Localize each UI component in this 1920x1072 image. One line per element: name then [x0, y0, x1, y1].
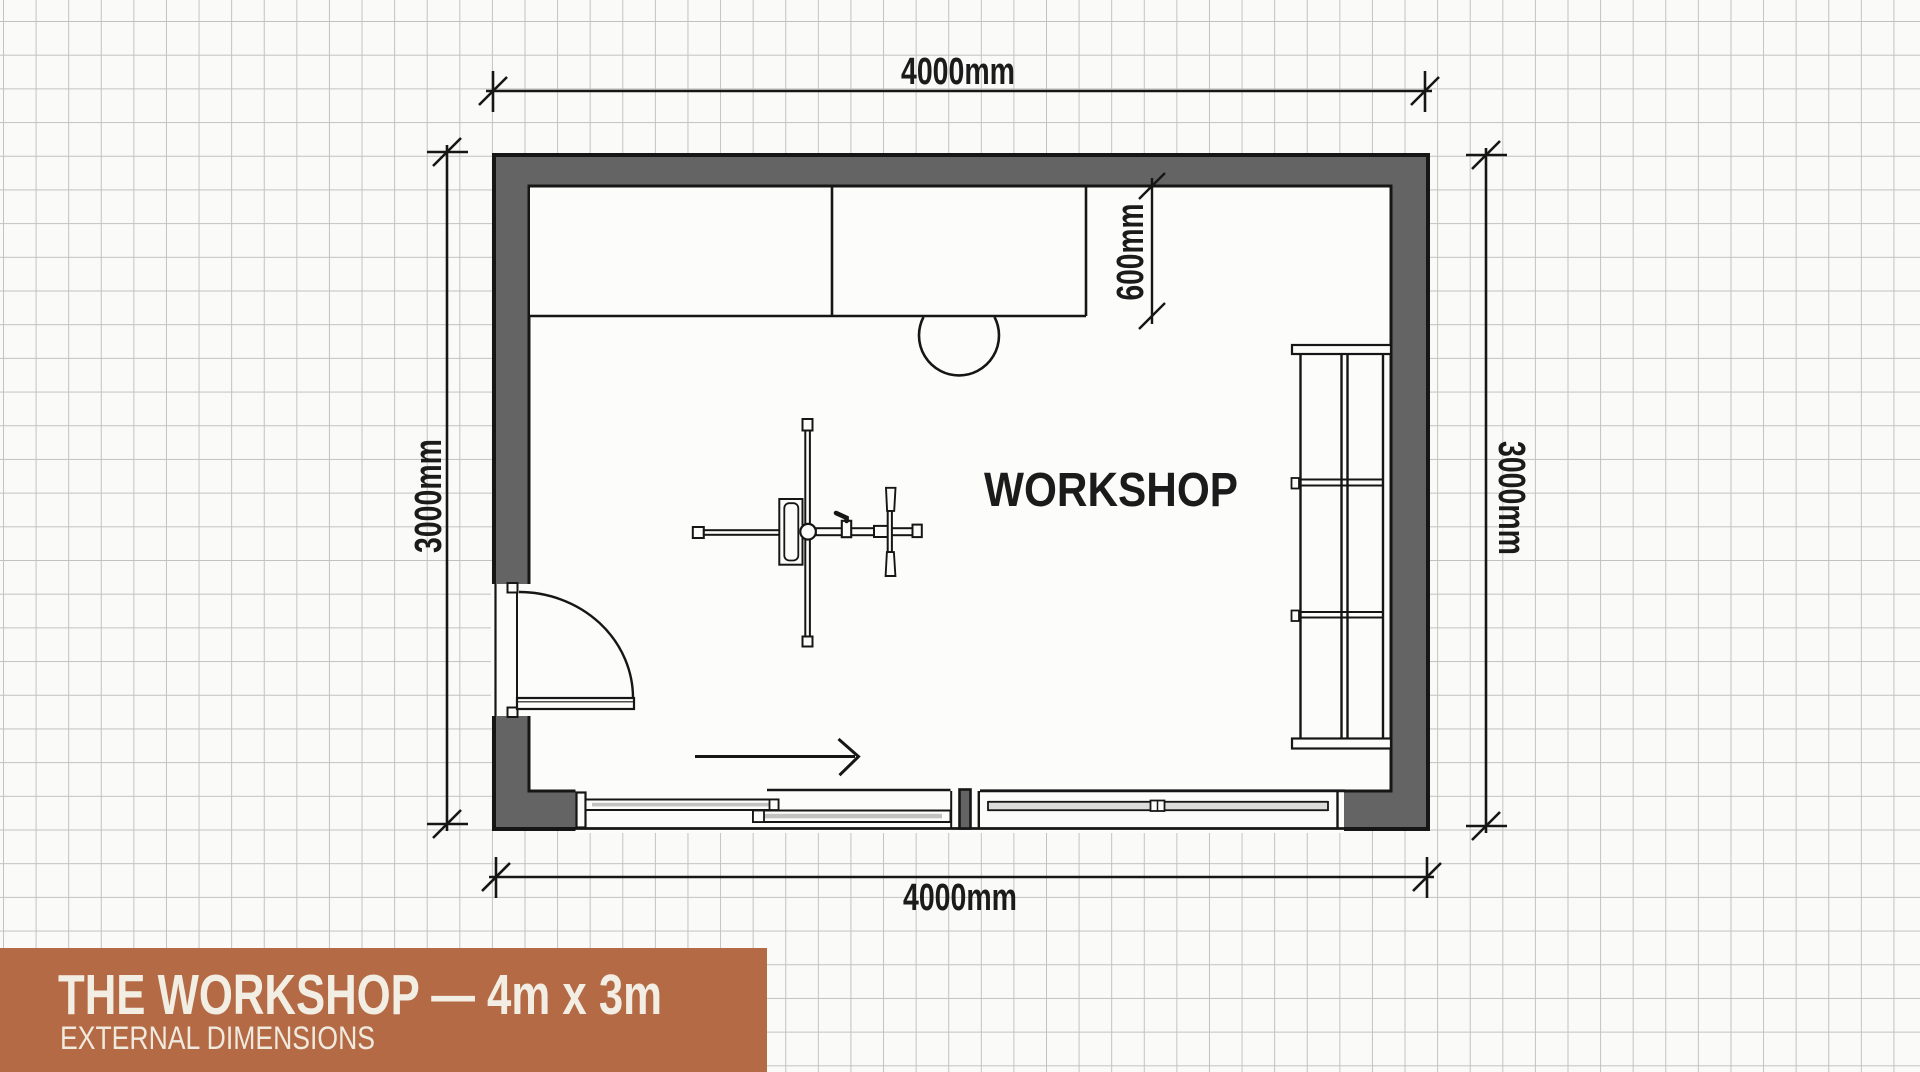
svg-text:600mm: 600mm — [1110, 204, 1152, 301]
svg-text:4000mm: 4000mm — [901, 51, 1015, 93]
svg-text:EXTERNAL DIMENSIONS: EXTERNAL DIMENSIONS — [60, 1020, 375, 1056]
svg-text:WORKSHOP: WORKSHOP — [984, 464, 1238, 517]
svg-text:THE WORKSHOP — 4m x 3m: THE WORKSHOP — 4m x 3m — [58, 963, 662, 1027]
svg-text:4000mm: 4000mm — [903, 877, 1017, 919]
svg-text:3000mm: 3000mm — [1490, 441, 1532, 555]
svg-text:3000mm: 3000mm — [408, 439, 450, 553]
